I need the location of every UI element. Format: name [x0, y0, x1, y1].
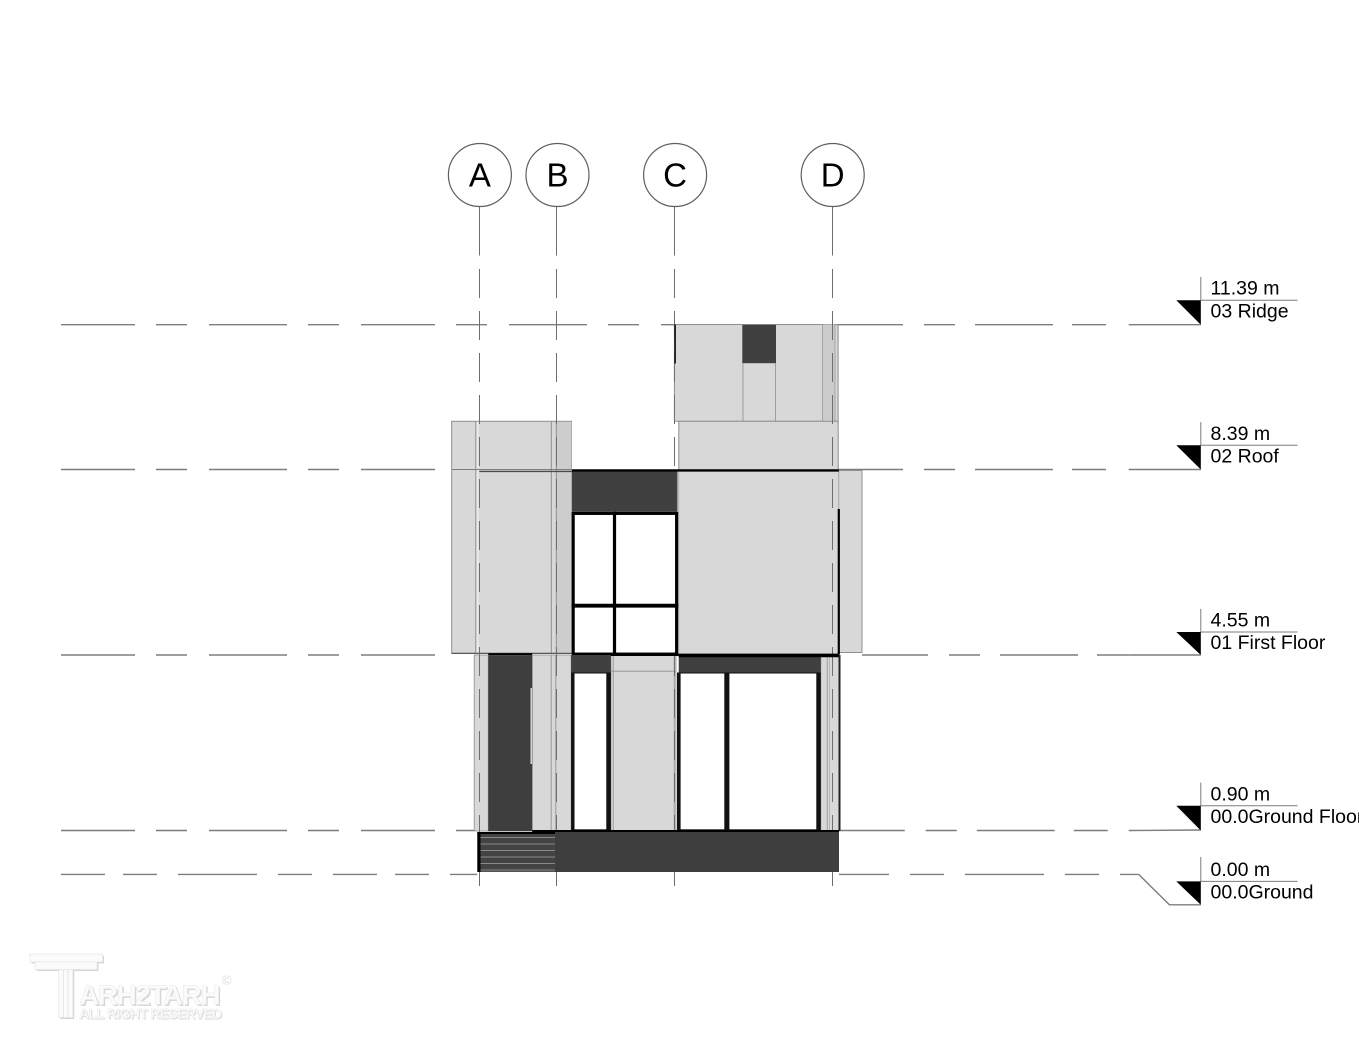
svg-text:D: D	[821, 157, 845, 194]
svg-text:©: ©	[222, 973, 232, 988]
svg-text:A: A	[469, 157, 491, 194]
svg-text:0.00 m: 0.00 m	[1211, 859, 1271, 881]
svg-text:8.39 m: 8.39 m	[1211, 423, 1271, 445]
svg-text:ALL RIGHT RESERVED: ALL RIGHT RESERVED	[79, 1006, 222, 1022]
svg-text:00.0Ground: 00.0Ground	[1211, 882, 1314, 904]
svg-text:4.55 m: 4.55 m	[1211, 610, 1271, 632]
svg-text:0.90 m: 0.90 m	[1211, 783, 1271, 805]
svg-text:11.39 m: 11.39 m	[1211, 278, 1280, 300]
svg-text:01 First Floor: 01 First Floor	[1211, 632, 1326, 654]
svg-text:03 Ridge: 03 Ridge	[1211, 300, 1289, 322]
svg-text:00.0Ground Floor: 00.0Ground Floor	[1211, 806, 1359, 828]
svg-text:C: C	[663, 157, 687, 194]
svg-text:B: B	[546, 157, 568, 194]
svg-text:02 Roof: 02 Roof	[1211, 446, 1280, 468]
